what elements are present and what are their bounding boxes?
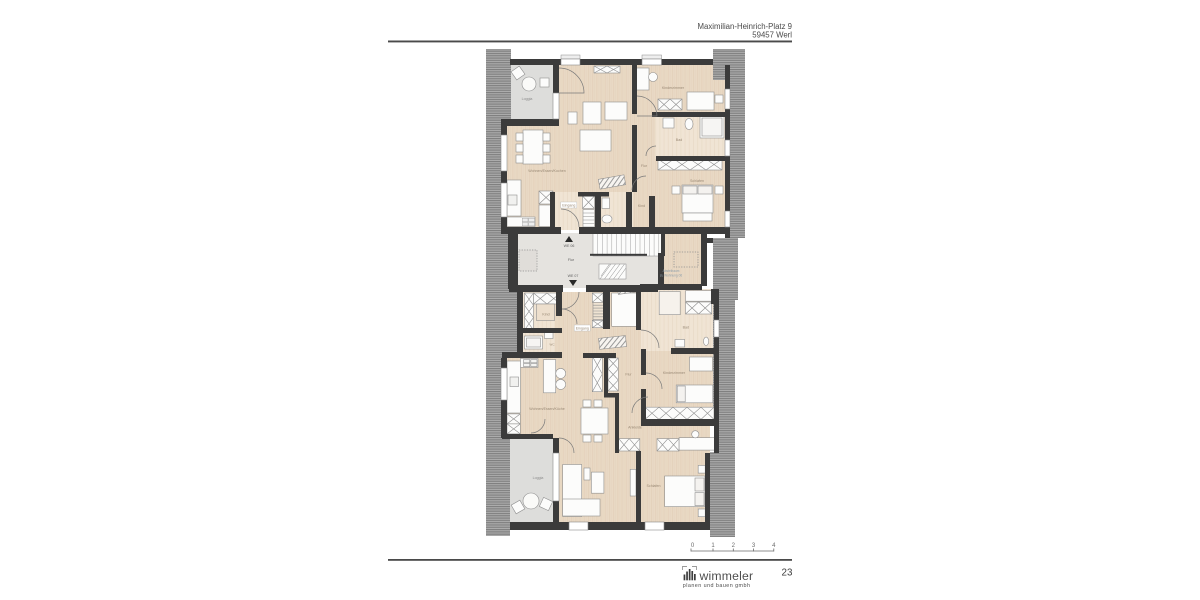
svg-text:WE 06: WE 06 — [564, 244, 575, 248]
svg-text:Abstellraum: Abstellraum — [663, 269, 680, 273]
svg-text:1: 1 — [711, 543, 715, 549]
svg-text:Schlafen: Schlafen — [647, 484, 661, 488]
svg-text:zu Wohnung 06: zu Wohnung 06 — [660, 274, 682, 278]
svg-text:Kinderzimmer: Kinderzimmer — [663, 371, 686, 375]
svg-text:Maximilian-Heinrich-Platz 9: Maximilian-Heinrich-Platz 9 — [698, 22, 792, 31]
svg-text:3: 3 — [752, 543, 756, 549]
svg-text:Kinderzimmer: Kinderzimmer — [662, 86, 685, 90]
svg-text:4: 4 — [772, 543, 776, 549]
svg-text:2: 2 — [732, 543, 736, 549]
svg-text:WE 07: WE 07 — [568, 274, 579, 278]
svg-text:Ankleide: Ankleide — [628, 426, 642, 430]
svg-text:Eingang: Eingang — [576, 327, 589, 331]
svg-text:Loggia: Loggia — [522, 97, 533, 101]
svg-text:Wohnen/Essen/Kochen: Wohnen/Essen/Kochen — [528, 169, 566, 173]
svg-text:Flur: Flur — [568, 258, 575, 262]
svg-text:Bad: Bad — [676, 138, 682, 142]
svg-text:wimmeler: wimmeler — [699, 569, 754, 583]
svg-text:59457 Werl: 59457 Werl — [752, 31, 792, 40]
svg-text:WC: WC — [550, 343, 556, 347]
svg-text:Kind: Kind — [542, 313, 549, 317]
svg-text:Bad: Bad — [683, 326, 689, 330]
svg-text:planen und bauen gmbh: planen und bauen gmbh — [683, 583, 751, 589]
svg-text:Wohnen/Essen/Küche: Wohnen/Essen/Küche — [529, 407, 565, 411]
svg-text:Loggia: Loggia — [533, 476, 544, 480]
svg-text:Schlafen: Schlafen — [690, 179, 704, 183]
svg-text:23: 23 — [782, 568, 793, 579]
svg-text:0: 0 — [691, 543, 695, 549]
svg-text:Kind: Kind — [638, 204, 645, 208]
svg-text:Flur: Flur — [625, 373, 632, 377]
svg-text:Eingang: Eingang — [562, 204, 575, 208]
svg-text:Flur: Flur — [641, 164, 648, 168]
